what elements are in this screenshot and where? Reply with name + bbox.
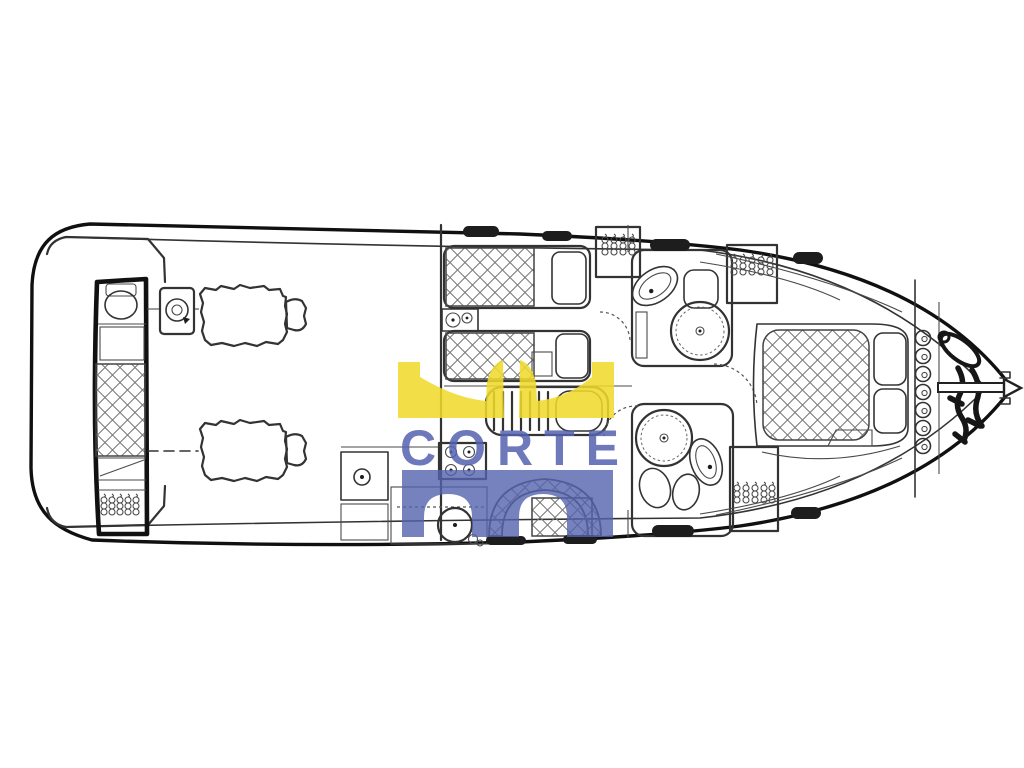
- yacht-floor-plan-page: CORTE: [0, 0, 1024, 768]
- engine-port: [200, 285, 306, 346]
- aft-crew-cabin: [95, 279, 147, 534]
- guest-cabin-twin-berths: [442, 246, 590, 381]
- engine-room: [147, 225, 441, 540]
- master-cabin-double-berth: [763, 330, 869, 440]
- yacht-deck-plan-drawing: [0, 0, 1024, 768]
- engine-starboard: [200, 420, 306, 481]
- crew-hanging-locker: [101, 494, 139, 515]
- upper-head: [625, 250, 732, 366]
- upper-head-sink: [625, 259, 684, 314]
- guest-nightstand: [442, 309, 478, 331]
- crew-toilet: [105, 284, 137, 319]
- watermark-text: CORTE: [400, 423, 630, 473]
- generator: [160, 288, 194, 334]
- crew-berth: [96, 364, 145, 456]
- master-pillows: [874, 333, 906, 433]
- lower-head-shower: [636, 410, 692, 466]
- anchor-chain-links: [916, 331, 931, 454]
- upper-head-shower: [671, 302, 729, 360]
- watermark-block: [402, 470, 613, 537]
- lower-head-toilet: [635, 464, 703, 512]
- lower-head-sink: [684, 434, 729, 489]
- galley-cabinet: [341, 452, 388, 540]
